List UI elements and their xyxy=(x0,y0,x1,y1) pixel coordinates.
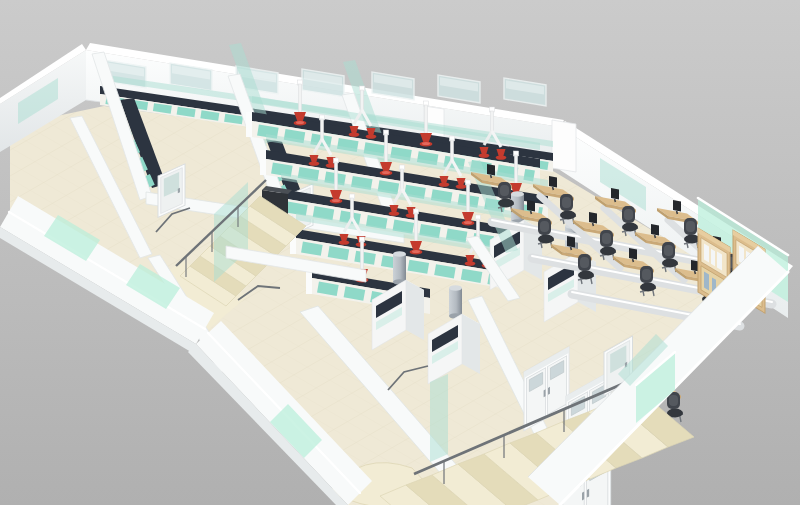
stair-glass-panel xyxy=(430,374,448,462)
floorplan-render xyxy=(0,0,800,505)
render-stage xyxy=(0,0,800,505)
corner-column xyxy=(552,120,576,172)
